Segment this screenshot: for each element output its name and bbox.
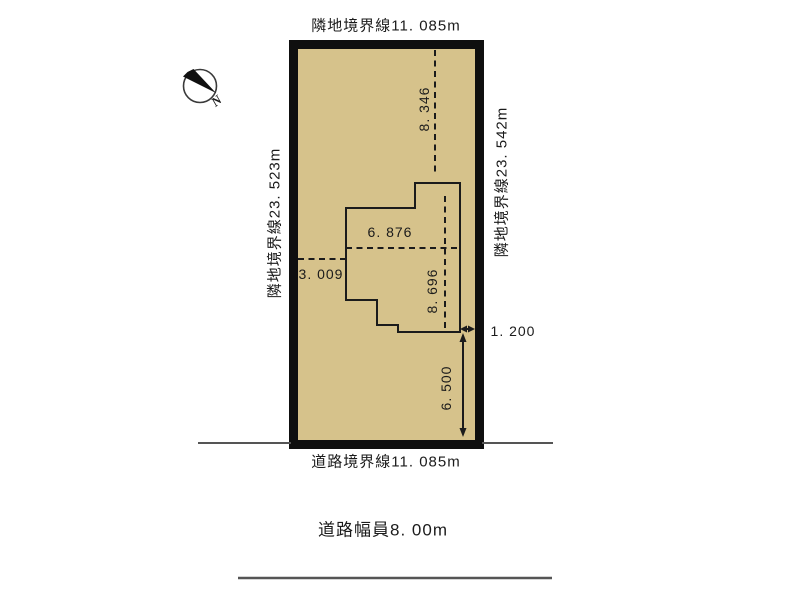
dim-label-upper-setback: 8. 346 (416, 87, 432, 132)
road-width-label: 道路幅員8. 00m (318, 516, 448, 541)
dim-label-building-width: 6. 876 (368, 224, 413, 240)
dim-label-left-setback: 3. 009 (299, 266, 344, 282)
dim-label-lower-setback: 6. 500 (438, 366, 454, 411)
north-label: N (207, 91, 225, 110)
land-parcel (289, 40, 484, 449)
boundary-label-left: 隣地境界線23. 523m (264, 148, 285, 299)
boundary-label-top: 隣地境界線11. 085m (311, 15, 460, 36)
dim-label-right-setback: 1. 200 (491, 323, 536, 339)
compass-needle (183, 69, 216, 93)
boundary-label-right: 隣地境界線23. 542m (491, 107, 512, 258)
dim-label-building-depth: 8. 696 (424, 269, 440, 314)
site-plan-diagram: N 隣地境界線11. 085m 隣地境界線23. 523m 隣地境界線23. 5… (0, 0, 800, 593)
north-compass-icon: N (183, 69, 225, 110)
compass-circle (184, 70, 217, 103)
road-boundary-label: 道路境界線11. 085m (311, 451, 460, 472)
